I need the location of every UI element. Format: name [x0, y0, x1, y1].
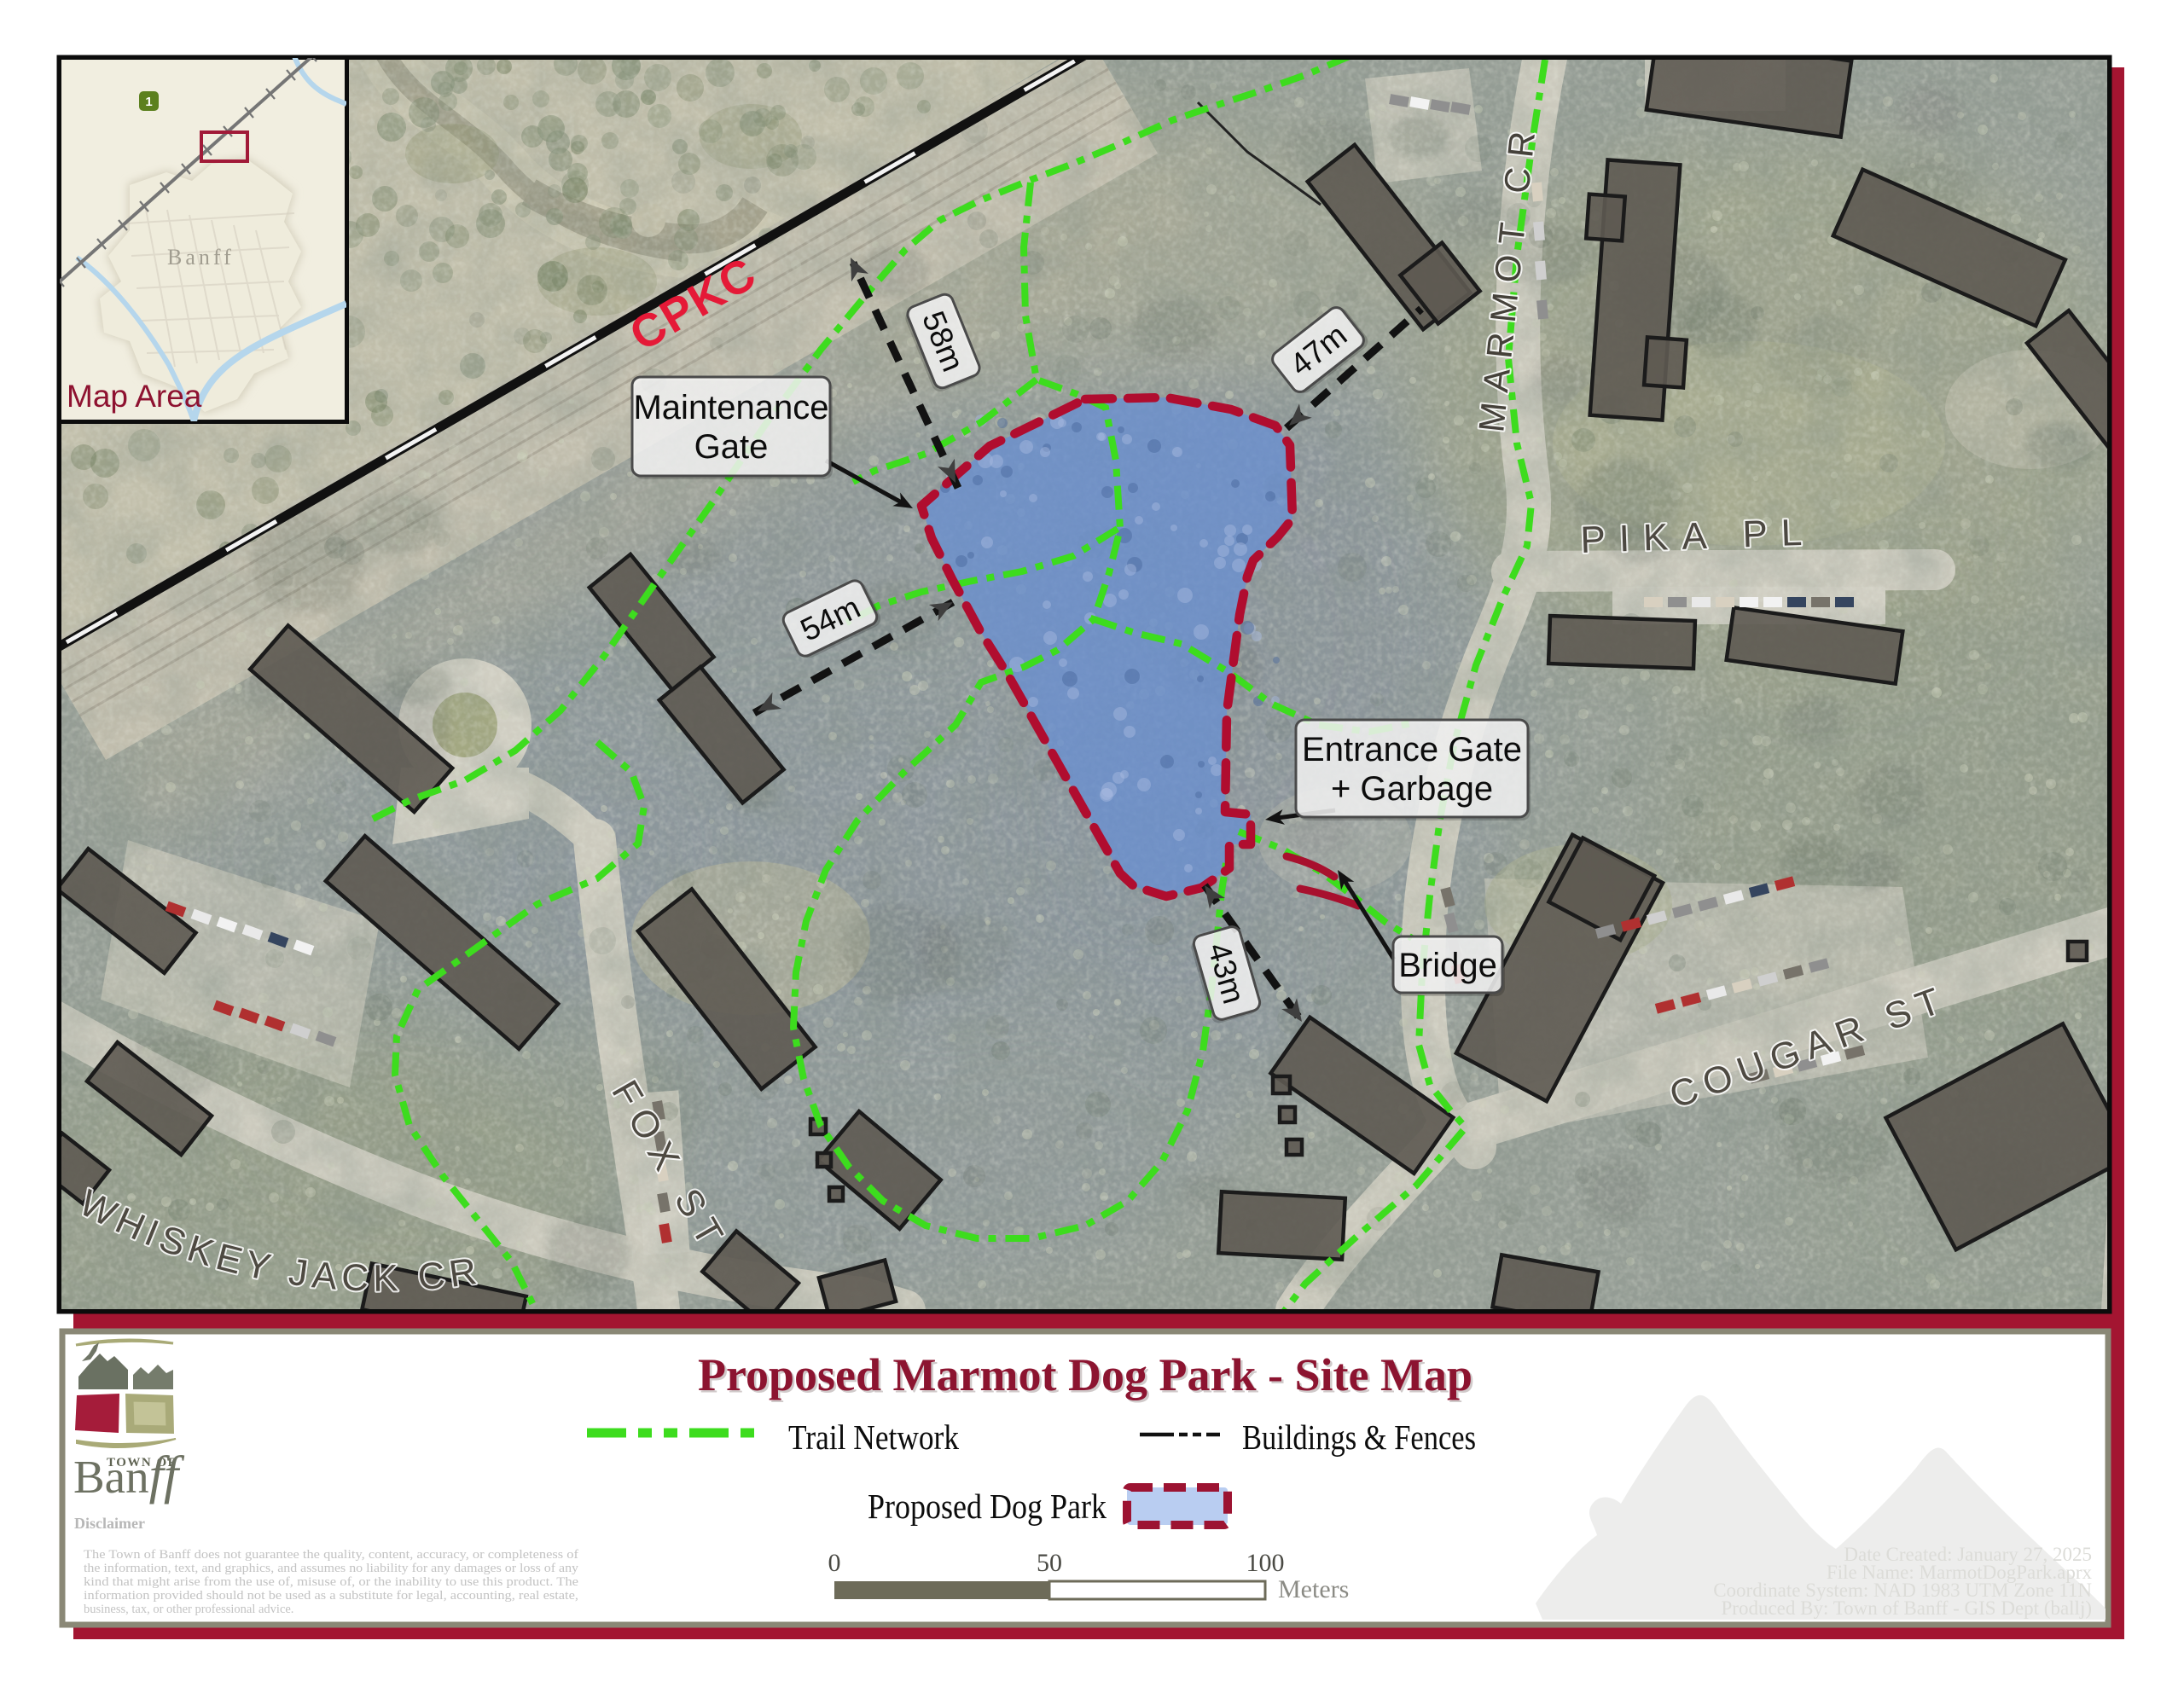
svg-text:Buildings & Fences: Buildings & Fences: [1242, 1417, 1476, 1457]
svg-text:50: 50: [1037, 1549, 1062, 1577]
svg-text:Map Area: Map Area: [67, 379, 202, 414]
svg-text:Maintenance: Maintenance: [633, 389, 828, 426]
svg-text:Entrance Gate: Entrance Gate: [1302, 731, 1522, 768]
svg-text:Gate: Gate: [694, 428, 769, 466]
svg-text:PIKA PL: PIKA PL: [1580, 511, 1816, 561]
svg-text:Produced By: Town of Banff - G: Produced By: Town of Banff - GIS Dept (b…: [1722, 1597, 2092, 1619]
svg-text:Banff: Banff: [167, 245, 235, 270]
svg-text:Proposed Dog Park: Proposed Dog Park: [868, 1487, 1107, 1526]
svg-text:Banff: Banff: [73, 1446, 185, 1504]
svg-text:business, tax, or other profes: business, tax, or other professional adv…: [84, 1603, 293, 1616]
svg-text:Trail Network: Trail Network: [788, 1417, 959, 1457]
svg-text:Bridge: Bridge: [1398, 947, 1497, 984]
svg-text:The Town of Banff does not gua: The Town of Banff does not guarantee the…: [84, 1548, 578, 1562]
svg-text:1: 1: [145, 95, 152, 109]
svg-text:Meters: Meters: [1278, 1575, 1349, 1603]
svg-text:Proposed Marmot Dog Park - Sit: Proposed Marmot Dog Park - Site Map: [698, 1349, 1472, 1400]
svg-text:kind that might arise from the: kind that might arise from the use of, m…: [84, 1575, 578, 1589]
svg-text:100: 100: [1246, 1549, 1285, 1577]
svg-text:information provided should no: information provided should not be used …: [84, 1589, 578, 1603]
svg-text:the information, text, and gra: the information, text, and graphics, and…: [84, 1562, 579, 1575]
svg-text:0: 0: [828, 1549, 841, 1577]
svg-text:+ Garbage: + Garbage: [1331, 770, 1493, 808]
svg-text:Disclaimer: Disclaimer: [74, 1515, 145, 1532]
